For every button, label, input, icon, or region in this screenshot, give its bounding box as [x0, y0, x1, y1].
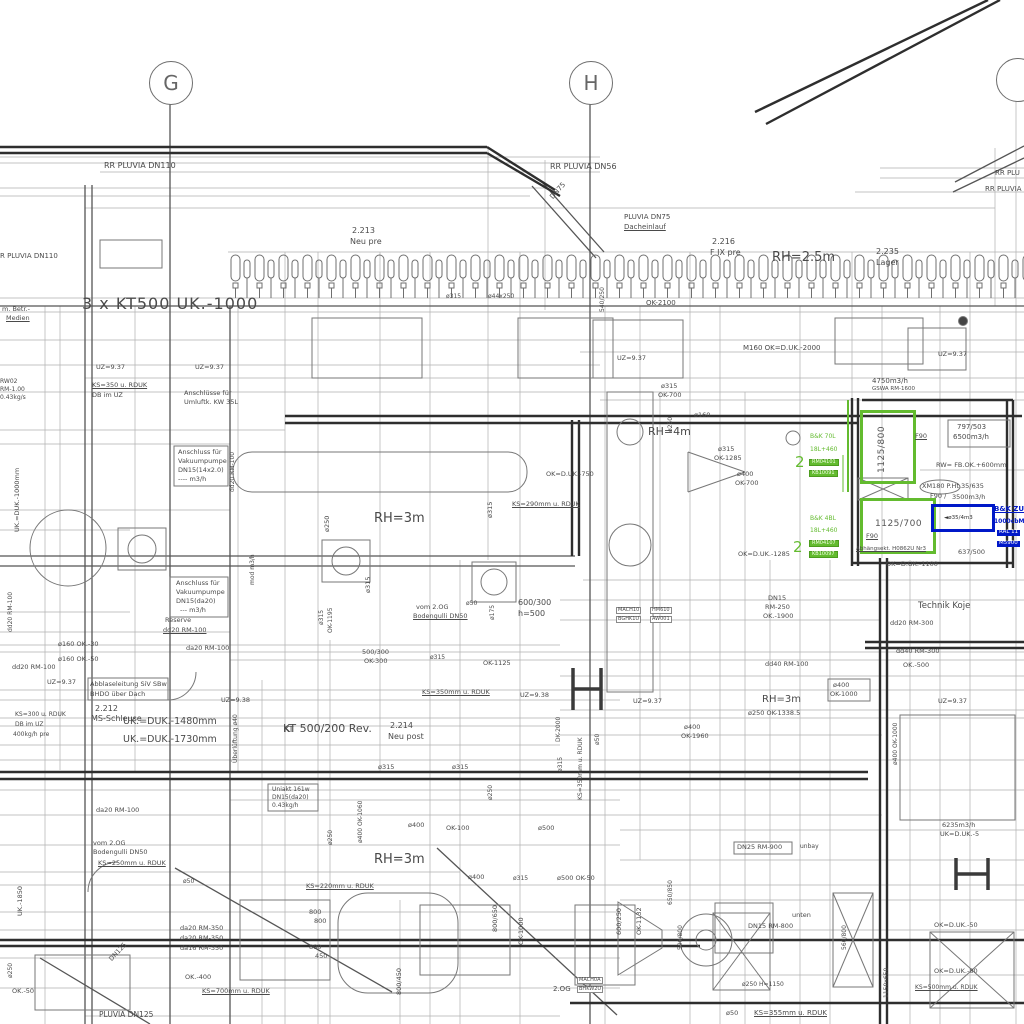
annotation-label: Anschlüsse für: [184, 390, 232, 397]
annotation-label: UZ=9.37: [938, 351, 967, 358]
annotation-label: Neu pre: [350, 238, 382, 246]
annotation-label: BHKW2U: [577, 986, 603, 993]
annotation-label: F90: [866, 533, 878, 540]
annotation-label: 800: [314, 918, 326, 925]
annotation-label: da20 RM-100: [96, 807, 139, 814]
annotation-label: RH=3m: [374, 853, 425, 866]
annotation-label: ø50: [183, 879, 194, 885]
annotation-label: Bodengulli DN50: [93, 849, 148, 856]
annotation-label: ø500: [538, 825, 554, 832]
annotation-label: RH=3m: [762, 695, 801, 705]
annotation-label: OK-1000: [830, 691, 858, 698]
annotation-label: ø315: [661, 383, 677, 390]
annotation-label: vom 2.OG: [93, 840, 126, 847]
annotation-label: 0.43kg/h: [272, 803, 298, 809]
annotation-label: UZ=9.38: [520, 692, 549, 699]
annotation-label: ø315: [452, 764, 468, 771]
annotation-label: MACH0A: [577, 977, 603, 984]
annotation-label: OK-700: [735, 480, 758, 487]
grid-axis-bubble-g: G: [149, 61, 193, 105]
annotation-label: dd20 RM-100: [12, 664, 55, 671]
annotation-label: Dacheinlauf: [624, 224, 666, 231]
annotation-label: ø250: [328, 830, 334, 845]
annotation-label: dd20 RM-100: [163, 627, 206, 634]
annotation-label: KB10097: [809, 551, 838, 558]
annotation-label: XM180 P.Ht.35/635: [922, 483, 984, 490]
annotation-label: 797/503: [957, 424, 986, 431]
annotation-label: PLUVIA DN125: [99, 1011, 153, 1019]
annotation-label: RM-250: [765, 604, 790, 611]
annotation-label: ø315: [513, 876, 528, 882]
annotation-label: da16 RM-350: [180, 945, 223, 952]
annotation-label: OK=D.UK.-50: [934, 922, 978, 929]
annotation-label: ø315: [718, 446, 734, 453]
annotation-label: Medien: [6, 315, 30, 322]
annotation-label: UZ=9.38: [221, 697, 250, 704]
annotation-label: ø250: [668, 417, 674, 432]
annotation-label: ø250 H=1150: [742, 982, 784, 988]
annotation-label: 1000cbM: [994, 519, 1024, 525]
annotation-label: 2.213: [352, 227, 375, 235]
annotation-label: 600/300: [518, 599, 551, 607]
annotation-label: Anschluss für: [178, 449, 222, 456]
annotation-label: KB10091: [809, 470, 838, 477]
annotation-label: 6235m3/h: [942, 822, 975, 829]
annotation-label: B&K 70L: [810, 434, 836, 440]
annotation-label: 2.214: [390, 722, 413, 730]
annotation-label: dd40 RM-100: [765, 661, 808, 668]
annotation-label: F90 /: [930, 493, 946, 500]
annotation-label: 800: [309, 944, 321, 951]
annotation-label: ø160 OK.-30: [58, 641, 99, 648]
annotation-label: Reserve: [165, 617, 191, 624]
annotation-label: OK.-1900: [763, 613, 793, 620]
annotation-label: OK=D.UK.-1100: [886, 561, 938, 568]
annotation-label: m. Betr.-: [2, 306, 30, 313]
annotation-label: OK-2100: [646, 300, 676, 307]
annotation-label: UZ=9.37: [47, 679, 76, 686]
grid-axis-bubble-h: H: [569, 61, 613, 105]
annotation-label: ø160 OK.-50: [58, 656, 99, 663]
floorplan-canvas: G H 1125/800 1125/700 ◄ø35/4m3 RR PLUVIA…: [0, 0, 1024, 1024]
annotation-label: 1150x650: [884, 968, 890, 998]
annotation-label: 637/500: [958, 549, 985, 556]
annotation-label: UZ=9.37: [617, 355, 646, 362]
annotation-label: ø50: [726, 1010, 738, 1017]
annotation-label: KS=350mm u. RDUK: [422, 689, 490, 696]
annotation-label: DN15: [768, 595, 786, 602]
annotation-label: 0.43kg/s: [0, 395, 26, 401]
annotation-label: 800/450: [396, 968, 403, 995]
annotation-label: OK-1285: [714, 455, 742, 462]
annotation-label: ø175: [490, 605, 496, 620]
annotation-label: BGHK1U: [616, 616, 641, 623]
annotation-label: DN25 RM-900: [737, 844, 782, 851]
annotation-label: ø315: [446, 294, 461, 300]
annotation-label: da20 RM-100: [186, 645, 229, 652]
annotation-label: ø400 OK-1060: [358, 801, 364, 844]
annotation-label: 590/800: [678, 925, 684, 950]
annotation-label: OK-1125: [483, 660, 511, 667]
annotation-label: ø50: [466, 601, 477, 607]
annotation-label: Abblaseleitung SiV SBw: [90, 681, 167, 688]
annotation-label: OK.-500: [903, 662, 929, 669]
annotation-label: Abhängsekt. H0862U Nr3: [856, 547, 926, 553]
annotation-label: OK-1132: [636, 907, 643, 935]
annotation-label: R PLUVIA DN110: [0, 253, 58, 260]
annotation-label: 400kg/h pre: [13, 732, 49, 738]
annotation-label: mod m3/h: [250, 554, 256, 585]
annotation-label: 2.OG: [553, 986, 571, 993]
annotation-label: OK-700: [658, 392, 681, 399]
annotation-label: Vakuumpumpe: [176, 589, 225, 596]
annotation-label: ø50: [595, 734, 601, 745]
annotation-label: unten: [792, 912, 811, 919]
annotation-label: ø250: [488, 785, 494, 800]
annotation-label: ø250: [324, 516, 331, 532]
annotation-label: 2.212: [95, 705, 118, 713]
annotation-label: 500/300: [362, 649, 389, 656]
annotation-label: 2.216: [712, 238, 735, 246]
annotation-label: RH=3m: [374, 512, 425, 525]
annotation-label: ø315: [430, 655, 445, 661]
annotation-label: RR PLU: [995, 170, 1020, 177]
annotation-label: DN15(14x2.0): [178, 467, 224, 474]
annotation-label: AW001: [650, 616, 672, 623]
annotation-label: OK-100: [446, 825, 469, 832]
annotation-label: Lager: [876, 259, 899, 267]
annotation-label: ---- m3/h: [178, 476, 206, 483]
annotation-label: 18L+460: [810, 447, 837, 453]
annotation-label: UK.-1850: [17, 886, 24, 916]
annotation-label: DB im UZ: [15, 722, 43, 728]
annotation-label: RH=2.5m: [772, 251, 835, 264]
annotation-label: M160 OK=D.UK.-2000: [743, 345, 821, 352]
annotation-label: KS=500mm u. RDUK: [915, 985, 978, 991]
annotation-label: KS=700mm u. RDUK: [202, 988, 270, 995]
annotation-label: dd40 RM-300: [896, 648, 939, 655]
annotation-label: ø400: [833, 682, 849, 689]
annotation-label: ø400: [684, 724, 700, 731]
annotation-label: UZ=9.37: [938, 698, 967, 705]
annotation-label: F90: [915, 433, 927, 440]
annotation-label: Technik Koje: [918, 602, 970, 611]
annotation-label: ø250 OK-1338.5: [748, 710, 800, 717]
annotation-label: OK=D.UK.-80: [934, 968, 978, 975]
annotation-label: 560/800: [842, 925, 848, 950]
annotation-label: KS=355mm u. RDUK: [754, 1010, 827, 1017]
grid-axis-label: G: [163, 71, 179, 95]
annotation-label: UZ=9.37: [633, 698, 662, 705]
annotation-label: Überlüftung ø40: [233, 714, 239, 763]
annotation-label: 18L+460: [810, 528, 837, 534]
annotation-label: ø315: [365, 577, 372, 593]
annotation-label: Anschluss für: [176, 580, 220, 587]
annotation-label: F IX pre: [710, 249, 741, 257]
annotation-label: KT 500/200 Rev.: [283, 723, 372, 734]
annotation-label: RW02: [0, 379, 18, 385]
annotation-label: BHDO über Dach: [90, 691, 145, 698]
annotation-label: unbay: [800, 844, 819, 850]
blue-unit-label: ◄ø35/4m3: [944, 515, 973, 521]
annotation-label: M5900: [997, 541, 1020, 547]
annotation-label: OK.-400: [185, 974, 211, 981]
annotation-label: --- m3/h: [180, 607, 206, 614]
annotation-label: DN125: [108, 942, 128, 963]
annotation-label: UK.=DUK.-1000mm: [14, 468, 21, 532]
annotation-label: vom 2.OG: [416, 604, 449, 611]
annotation-label: Bodengulli DN50: [413, 613, 468, 620]
annotation-label: KS=350 u. RDUK: [92, 382, 147, 389]
annotation-label: OK.-50: [12, 988, 34, 995]
annotation-label: RM-1.00: [0, 387, 25, 393]
annotation-label: 3500m3/h: [952, 494, 985, 501]
annotation-label: da20 RM-350: [180, 935, 223, 942]
annotation-label: RAL 11: [997, 530, 1020, 536]
annotation-label: B&K ZU: [994, 506, 1024, 513]
annotation-label: ø44x250: [488, 294, 514, 300]
annotation-label: 800/650: [492, 905, 499, 932]
annotation-label: DN15 RM-800: [748, 923, 793, 930]
annotation-label: ø315: [378, 764, 394, 771]
annotation-layer: RR PLUVIA DN110R PLUVIA DN110RR PLUVIA D…: [0, 0, 1024, 1024]
annotation-label: 600/250: [616, 908, 623, 935]
annotation-label: OK=D.UK.-750: [546, 471, 594, 478]
annotation-label: da20 RM-350: [180, 925, 223, 932]
annotation-label: ø500 OK-50: [557, 875, 595, 882]
annotation-label: 540/250: [600, 287, 606, 312]
annotation-label: ø315: [319, 610, 325, 625]
annotation-label: KS=350mm u. RDUK: [578, 737, 584, 800]
annotation-label: ø400: [468, 874, 484, 881]
annotation-label: 3 x KT500 UK.-1000: [82, 296, 258, 312]
annotation-label: RM04107: [809, 540, 839, 547]
annotation-label: RM04101: [809, 459, 839, 466]
annotation-label: OK-1000: [518, 917, 525, 945]
annotation-label: KS=220mm u. RDUK: [306, 883, 374, 890]
annotation-label: RR PLUVIA DN110: [104, 162, 176, 170]
annotation-label: ø160: [694, 412, 710, 419]
annotation-label: ø315: [487, 502, 494, 518]
annotation-label: 2: [795, 455, 805, 470]
annotation-label: UZ=9.37: [96, 364, 125, 371]
annotation-label: UK=D.UK.-5: [940, 831, 979, 838]
annotation-label: ø400: [408, 822, 424, 829]
annotation-label: Vakuumpumpe: [178, 458, 227, 465]
annotation-label: PLUVIA DN75: [624, 214, 670, 221]
annotation-label: Umluftk. KW 35L: [184, 399, 238, 406]
annotation-label: DN75: [549, 181, 567, 200]
annotation-label: 4750m3/h: [872, 378, 908, 385]
annotation-label: ø400 OK-1000: [893, 723, 899, 766]
annotation-label: UZ=9.37: [195, 364, 224, 371]
annotation-label: DN15(da20): [272, 795, 309, 801]
annotation-label: 650/850: [668, 880, 674, 905]
annotation-label: HM610: [650, 607, 672, 614]
annotation-label: KS=250mm u. RDUK: [98, 860, 166, 867]
annotation-label: OK-1195: [328, 608, 334, 633]
annotation-label: 6500m3/h: [953, 434, 989, 441]
annotation-label: UK.=DUK.-1480mm: [123, 717, 217, 727]
annotation-label: ø250: [8, 963, 14, 978]
annotation-label: 2.235: [876, 248, 899, 256]
blue-unit-box: ◄ø35/4m3: [931, 504, 995, 532]
annotation-label: DK-2000: [556, 717, 562, 742]
annotation-label: h=500: [518, 610, 545, 618]
annotation-label: KS=290mm u. RDUK: [512, 501, 580, 508]
annotation-label: RR PLUVIA: [985, 186, 1022, 193]
annotation-label: OK=D.UK.-1285: [738, 551, 790, 558]
annotation-label: OK-300: [364, 658, 387, 665]
annotation-label: B&K 4BL: [810, 516, 836, 522]
annotation-label: 2: [793, 540, 803, 555]
annotation-label: RR PLUVIA DN56: [550, 163, 617, 171]
annotation-label: Uniakt 161w: [272, 787, 310, 793]
annotation-label: RW= FB.OK.+600mm: [936, 462, 1006, 469]
annotation-label: dd20 RM-100: [8, 592, 14, 632]
annotation-label: ø315: [558, 757, 564, 772]
annotation-label: dd20 RM-100: [230, 452, 236, 492]
annotation-label: DN15(da20): [176, 598, 216, 605]
annotation-label: UK.=DUK.-1730mm: [123, 735, 217, 745]
annotation-label: dd20 RM-300: [890, 620, 933, 627]
annotation-label: MACH10: [616, 607, 641, 614]
annotation-label: 800: [309, 909, 321, 916]
annotation-label: KS=300 u. RDUK: [15, 712, 66, 718]
annotation-label: Neu post: [388, 733, 424, 741]
grid-axis-label: H: [583, 71, 598, 95]
annotation-label: GSWA RM-1600: [872, 387, 915, 393]
annotation-label: ø400: [737, 471, 753, 478]
annotation-label: 450: [315, 953, 327, 960]
annotation-label: DB im UZ: [92, 392, 123, 399]
annotation-label: OK-1960: [681, 733, 709, 740]
